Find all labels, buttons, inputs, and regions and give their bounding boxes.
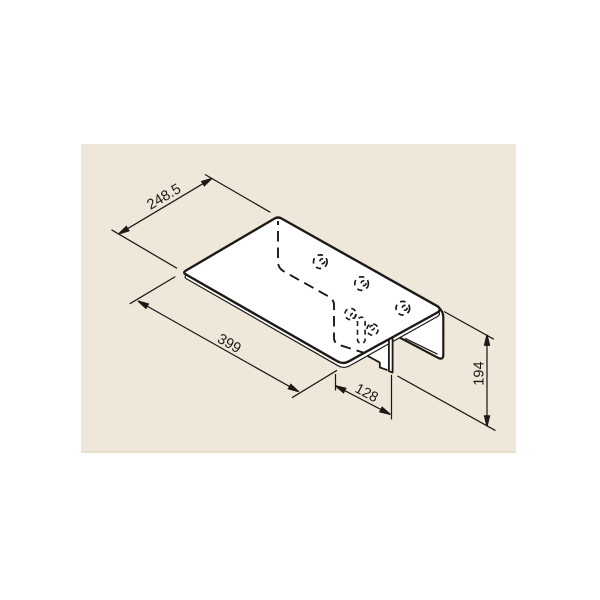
svg-text:194: 194 [472,361,488,385]
